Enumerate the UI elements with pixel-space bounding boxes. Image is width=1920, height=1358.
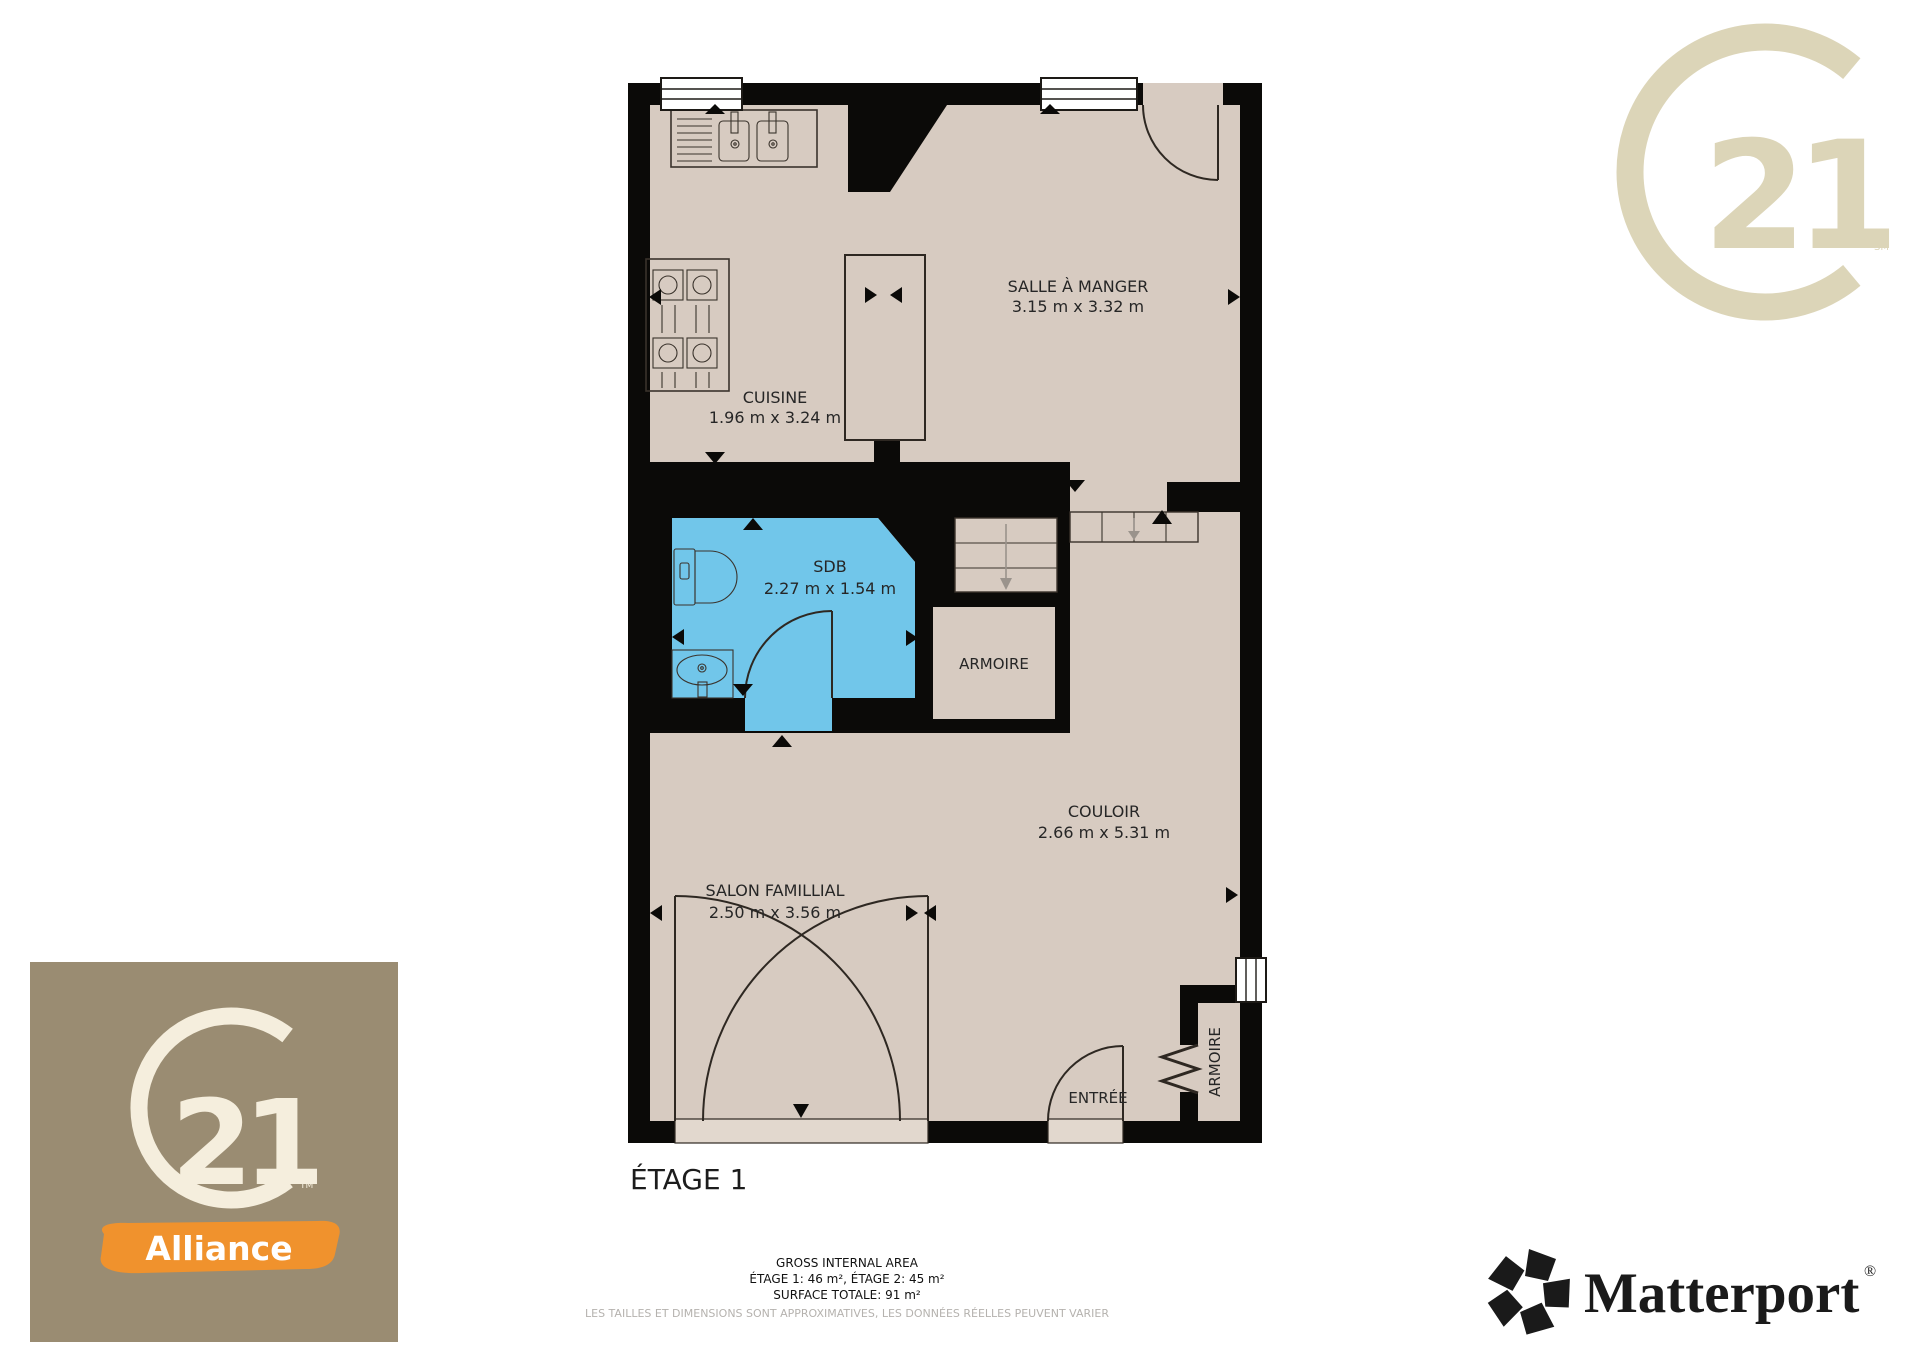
dining-partition-column xyxy=(845,255,925,440)
label-salle-a-manger-dims: 3.15 m x 3.32 m xyxy=(1012,297,1144,316)
label-couloir: COULOIR xyxy=(1068,802,1140,821)
label-sdb: SDB xyxy=(813,557,846,576)
bathroom-floor xyxy=(672,518,915,698)
window-entry-armoire xyxy=(1236,958,1266,1002)
label-couloir-dims: 2.66 m x 5.31 m xyxy=(1038,823,1170,842)
century21-watermark: 21 SM xyxy=(1630,37,1890,307)
label-cuisine-dims: 1.96 m x 3.24 m xyxy=(709,408,841,427)
floor-title: ÉTAGE 1 xyxy=(630,1162,747,1196)
label-salle-a-manger: SALLE À MANGER xyxy=(1008,277,1149,296)
label-cuisine: CUISINE xyxy=(743,388,808,407)
matterport-registered-mark: ® xyxy=(1864,1263,1876,1280)
matterport-pinwheel-icon xyxy=(1482,1249,1578,1343)
floor-plan-canvas: CUISINE 1.96 m x 3.24 m SALLE À MANGER 3… xyxy=(0,0,1920,1358)
label-armoire-middle: ARMOIRE xyxy=(959,655,1029,673)
window-kitchen xyxy=(661,78,742,110)
bathroom-door-threshold xyxy=(745,698,832,731)
label-sdb-dims: 2.27 m x 1.54 m xyxy=(764,579,896,598)
label-armoire-entry: ARMOIRE xyxy=(1206,1027,1224,1097)
footer-area-line2: SURFACE TOTALE: 91 m² xyxy=(773,1288,921,1302)
footer: GROSS INTERNAL AREA ÉTAGE 1: 46 m², ÉTAG… xyxy=(585,1256,1109,1320)
footer-area-line1: ÉTAGE 1: 46 m², ÉTAGE 2: 45 m² xyxy=(749,1271,944,1286)
matterport-wordmark: Matterport xyxy=(1584,1262,1859,1325)
label-salon: SALON FAMILLIAL xyxy=(706,881,845,900)
c21-sm-mark: SM xyxy=(1874,242,1889,253)
window-dining xyxy=(1041,78,1137,110)
label-entree: ENTRÉE xyxy=(1068,1088,1127,1107)
footer-area-title: GROSS INTERNAL AREA xyxy=(776,1256,919,1270)
label-salon-dims: 2.50 m x 3.56 m xyxy=(709,903,841,922)
footer-disclaimer: LES TAILLES ET DIMENSIONS SONT APPROXIMA… xyxy=(585,1307,1109,1320)
agency-name: Alliance xyxy=(145,1229,292,1268)
agency-number: 21 xyxy=(171,1074,317,1212)
agency-tm-mark: TM xyxy=(299,1181,313,1191)
agency-logo: 21 TM Alliance xyxy=(30,962,398,1342)
c21-number: 21 xyxy=(1703,110,1890,284)
floor-plan: CUISINE 1.96 m x 3.24 m SALLE À MANGER 3… xyxy=(628,78,1266,1196)
matterport-logo: Matterport ® xyxy=(1482,1249,1876,1343)
